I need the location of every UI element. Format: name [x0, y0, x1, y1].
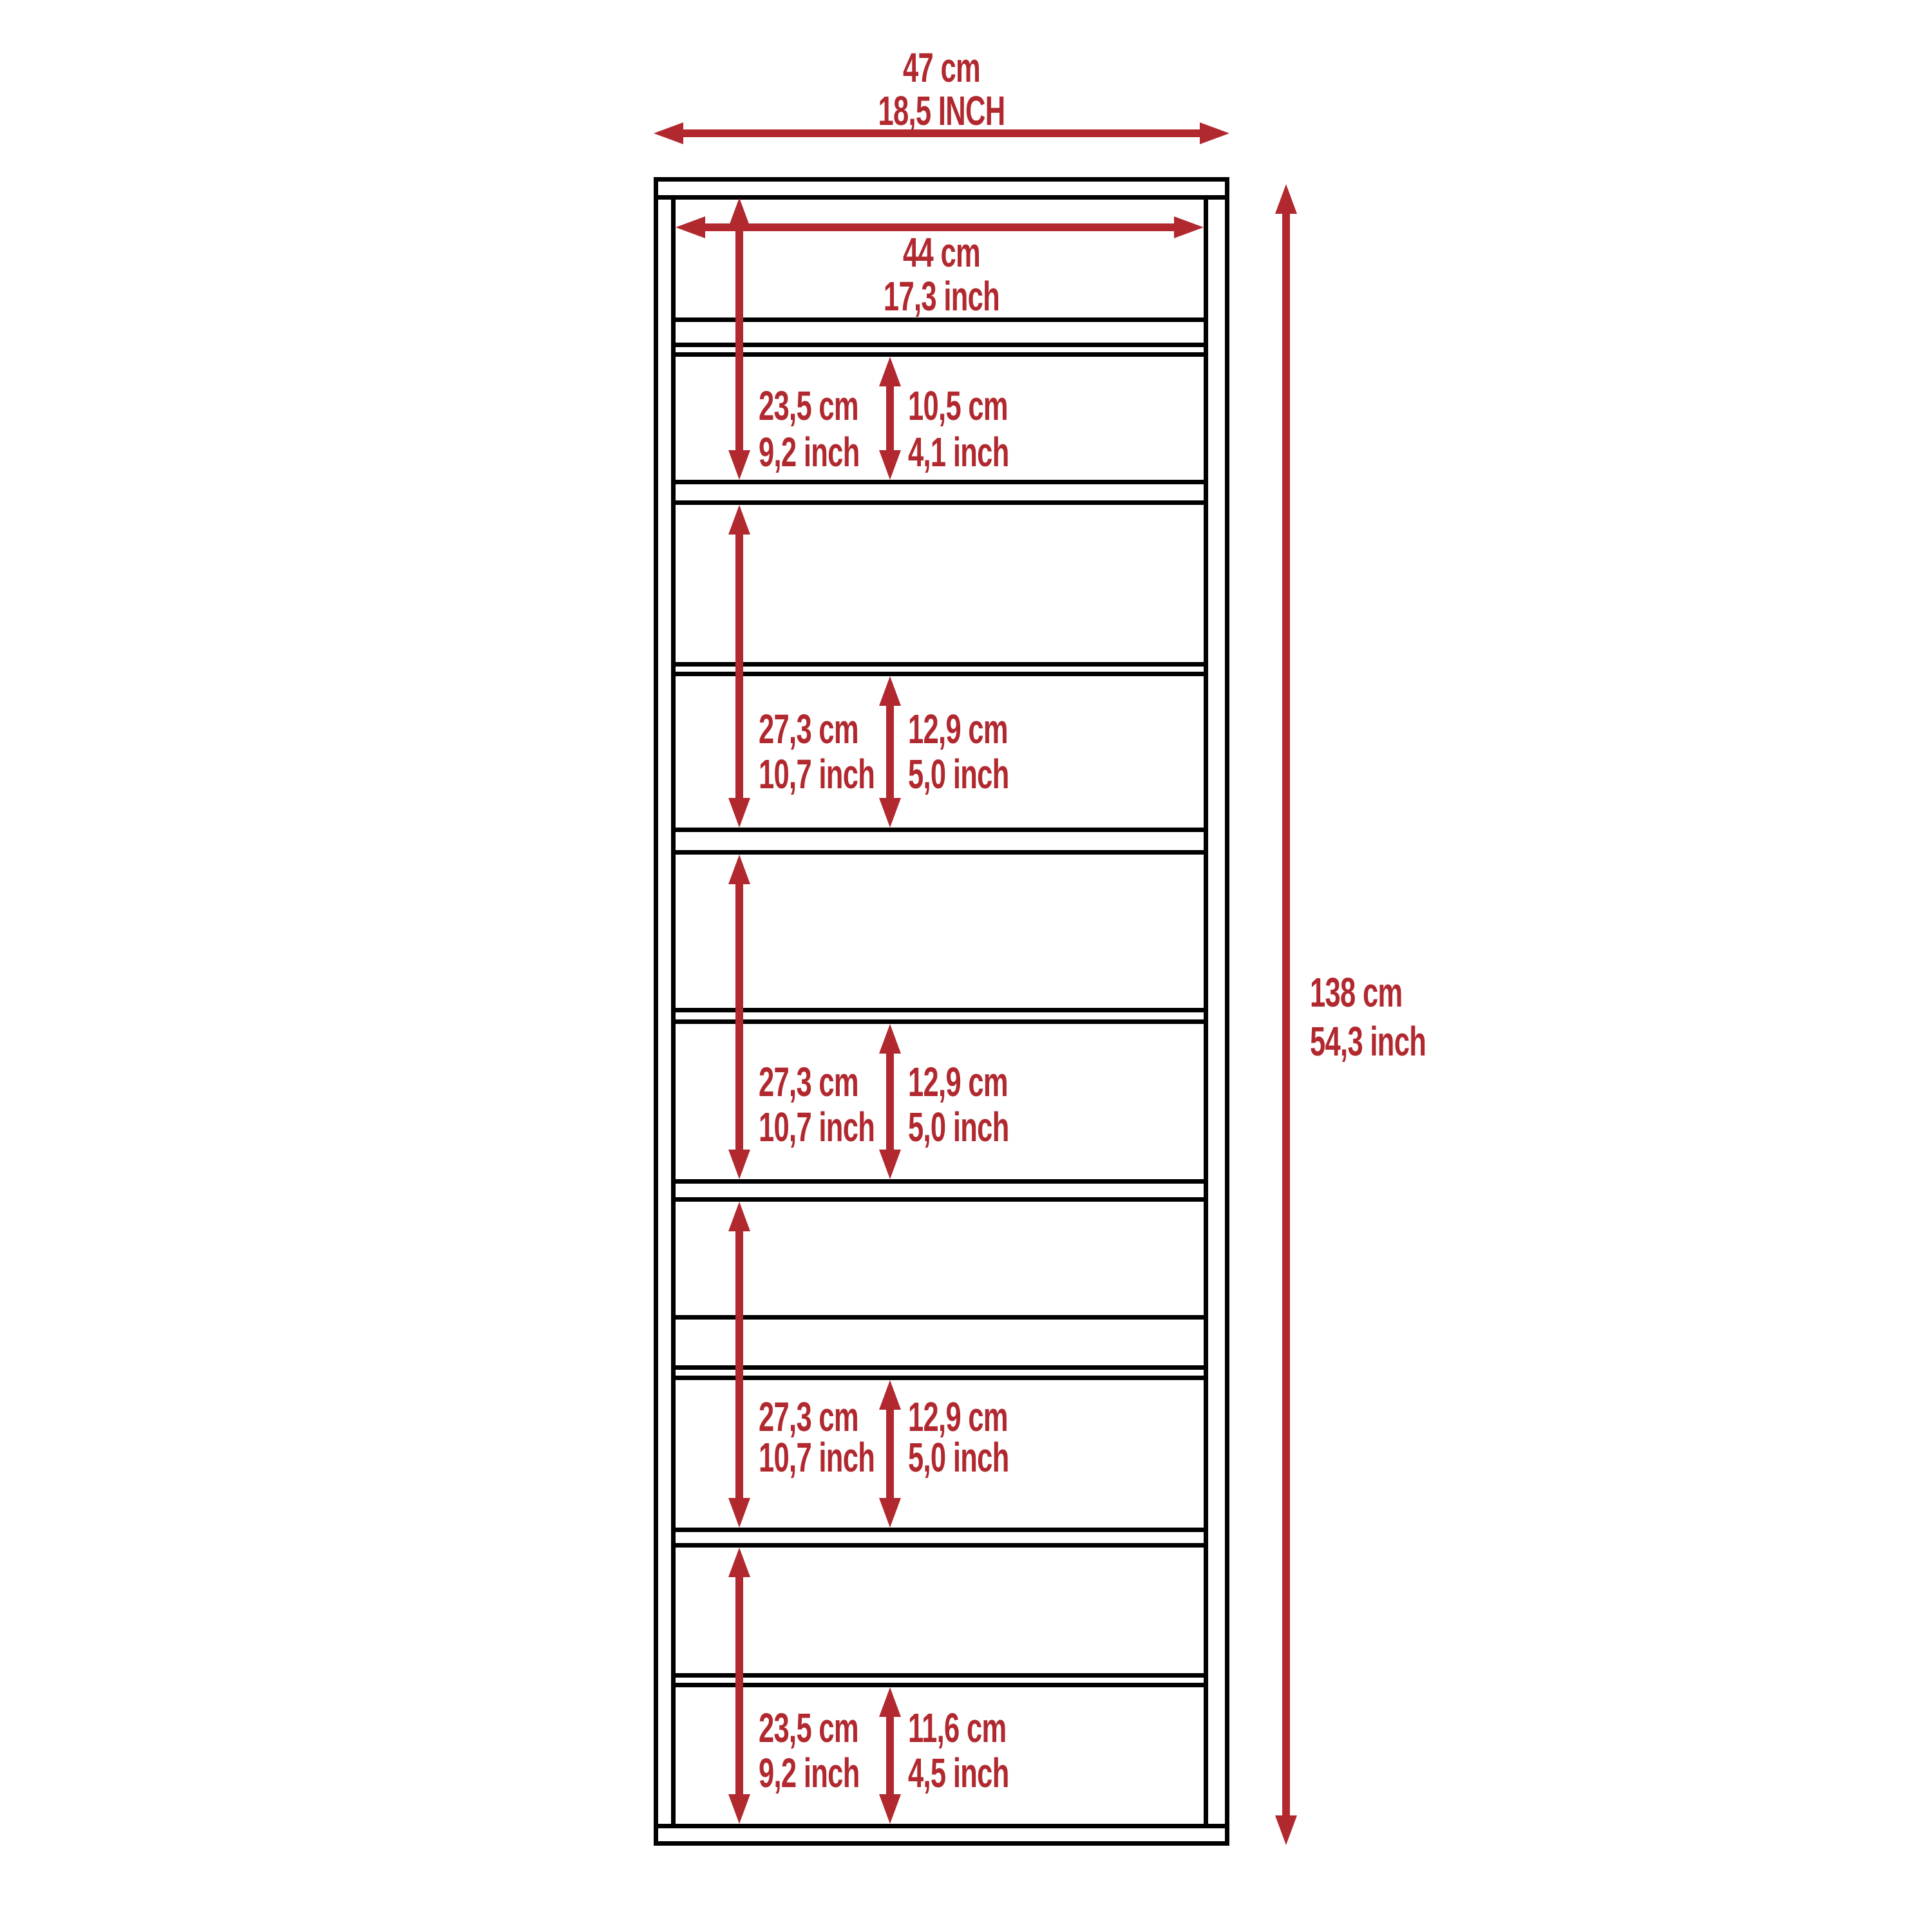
section-1-opening-arrow: [879, 357, 901, 480]
shelf-line: [676, 1528, 1204, 1532]
shelf-line: [676, 662, 1204, 667]
section-4-height-label-inch: 10,7 inch: [759, 1437, 875, 1478]
section-4-opening-label-cm: 12,9 cm: [908, 1396, 1008, 1437]
cabinet-left-inner-wall: [671, 195, 676, 1828]
section-2-height-arrow: [728, 505, 750, 828]
shelf-line: [676, 850, 1204, 855]
shelf-line: [676, 1008, 1204, 1012]
section-1-opening-label-cm: 10,5 cm: [908, 385, 1008, 426]
section-5-height-arrow: [728, 1548, 750, 1824]
shelf-line: [676, 352, 1204, 357]
shelf-line: [676, 500, 1204, 505]
section-4-opening-label-inch: 5,0 inch: [908, 1437, 1009, 1478]
section-1-height-label-inch: 9,2 inch: [759, 431, 860, 473]
section-2-height-label-inch: 10,7 inch: [759, 753, 875, 795]
shelf-line: [676, 1019, 1204, 1024]
section-5-height-label-cm: 23,5 cm: [759, 1707, 858, 1748]
cabinet-bottom-inner-line: [654, 1824, 1229, 1828]
section-3-height-label-inch: 10,7 inch: [759, 1106, 875, 1148]
shelf-line: [676, 1683, 1204, 1687]
inner-width-label-inch: 17,3 inch: [884, 276, 999, 317]
shelf-line: [676, 1365, 1204, 1370]
section-5-opening-arrow: [879, 1687, 901, 1824]
section-3-opening-label-inch: 5,0 inch: [908, 1106, 1009, 1148]
section-3-height-label-cm: 27,3 cm: [759, 1061, 858, 1103]
section-5-height-label-inch: 9,2 inch: [759, 1752, 860, 1794]
section-4-opening-arrow: [879, 1380, 901, 1528]
section-3-opening-label-cm: 12,9 cm: [908, 1061, 1008, 1103]
cabinet-right-outer-wall: [1225, 177, 1229, 1846]
section-4-height-label-cm: 27,3 cm: [759, 1396, 858, 1437]
section-3-height-arrow: [728, 855, 750, 1179]
section-5-opening-label-cm: 11,6 cm: [908, 1707, 1007, 1748]
cabinet-top-outer-line: [654, 177, 1229, 182]
shelf-line: [676, 1376, 1204, 1380]
section-1-height-arrow: [728, 198, 750, 480]
shelf-line: [676, 1673, 1204, 1678]
section-2-opening-label-cm: 12,9 cm: [908, 708, 1008, 750]
cabinet-bottom-outer-line: [654, 1841, 1229, 1846]
section-4-height-arrow: [728, 1202, 750, 1528]
inner-width-label-cm: 44 cm: [903, 232, 980, 273]
section-2-height-label-cm: 27,3 cm: [759, 708, 858, 750]
shelf-line: [676, 1543, 1204, 1548]
section-3-opening-arrow: [879, 1024, 901, 1179]
cabinet-dimension-diagram: 47 cm 18,5 INCH 44 cm 17,3 inch 138 cm 5…: [0, 0, 1932, 1932]
shelf-line: [676, 1315, 1204, 1320]
cabinet-right-inner-wall: [1204, 195, 1208, 1828]
shelf-line: [676, 343, 1204, 347]
overall-height-label-cm: 138 cm: [1310, 972, 1403, 1013]
section-1-height-label-cm: 23,5 cm: [759, 385, 858, 426]
overall-height-label-inch: 54,3 inch: [1310, 1021, 1426, 1062]
shelf-line: [676, 1179, 1204, 1184]
shelf-line: [676, 828, 1204, 832]
overall-height-arrow: [1275, 184, 1297, 1845]
cabinet-left-outer-wall: [654, 177, 658, 1846]
section-2-opening-arrow: [879, 676, 901, 828]
shelf-line: [676, 672, 1204, 676]
section-5-opening-label-inch: 4,5 inch: [908, 1752, 1009, 1794]
overall-width-label-inch: 18,5 INCH: [878, 90, 1005, 131]
section-1-opening-label-inch: 4,1 inch: [908, 431, 1009, 473]
shelf-line: [676, 480, 1204, 484]
section-2-opening-label-inch: 5,0 inch: [908, 753, 1009, 795]
shelf-line: [676, 1197, 1204, 1202]
overall-width-label-cm: 47 cm: [903, 47, 980, 88]
